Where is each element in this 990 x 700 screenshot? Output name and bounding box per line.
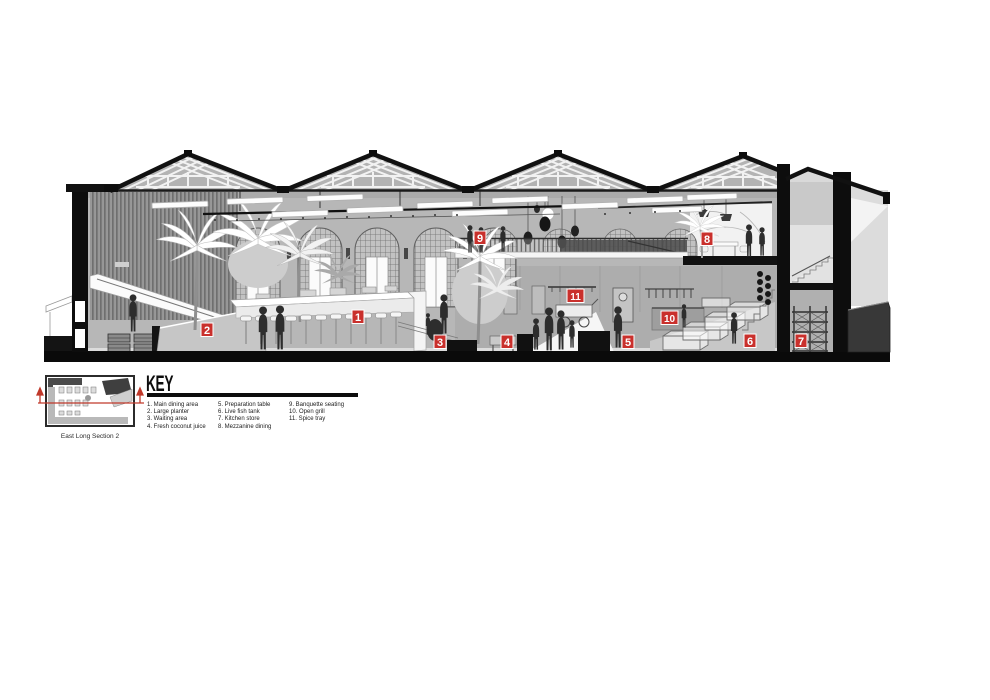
key-item-1: 1. Main dining area (147, 402, 218, 409)
key-column: 1. Main dining area2. Large planter3. Wa… (147, 402, 218, 431)
section-drawing: 1234567891011 (0, 0, 990, 700)
key-item-6: 6. Live fish tank (218, 409, 289, 416)
annex-upper-room (790, 225, 833, 283)
svg-text:6: 6 (747, 336, 753, 348)
svg-text:9: 9 (477, 233, 483, 245)
section-caption: East Long Section 2 (40, 433, 140, 440)
annex-wall-left (777, 164, 790, 352)
roof-structure (86, 150, 786, 193)
key-item-7: 7. Kitchen store (218, 416, 289, 423)
key-column: 5. Preparation table6. Live fish tank7. … (218, 402, 289, 431)
section-marker-11: 11 (567, 289, 584, 303)
key-item-9: 9. Banquette seating (289, 402, 364, 409)
ground-line (44, 351, 890, 362)
svg-text:5: 5 (625, 337, 631, 349)
svg-text:7: 7 (798, 336, 804, 348)
right-annex (777, 164, 890, 352)
key-rule (147, 393, 358, 397)
rear-annex-block (848, 302, 890, 352)
section-marker-10: 10 (661, 311, 678, 325)
svg-text:8: 8 (704, 234, 710, 246)
location-plan-thumbnail (36, 373, 146, 440)
key-item-8: 8. Mezzanine dining (218, 424, 289, 431)
svg-text:4: 4 (504, 337, 511, 349)
key-legend: 1. Main dining area2. Large planter3. Wa… (147, 402, 364, 431)
section-marker-4: 4 (501, 335, 513, 349)
section-marker-1: 1 (352, 310, 364, 324)
svg-text:10: 10 (664, 314, 676, 325)
key-column: 9. Banquette seating10. Open grill11. Sp… (289, 402, 364, 431)
section-marker-8: 8 (701, 232, 713, 246)
section-marker-6: 6 (744, 334, 756, 348)
key-item-11: 11. Spice tray (289, 416, 364, 423)
roof-bay-4 (653, 156, 786, 191)
svg-text:11: 11 (570, 292, 581, 303)
section-marker-2: 2 (201, 323, 213, 337)
key-item-3: 3. Waiting area (147, 416, 218, 423)
section-marker-3: 3 (434, 335, 446, 349)
architectural-sheet: 1234567891011 KEY 1. Main dining area2. … (0, 0, 990, 700)
key-item-2: 2. Large planter (147, 409, 218, 416)
key-item-10: 10. Open grill (289, 409, 364, 416)
section-marker-7: 7 (795, 334, 807, 348)
svg-text:2: 2 (204, 325, 210, 337)
section-marker-9: 9 (474, 231, 486, 245)
plan-thumbnail-drawing (36, 373, 146, 435)
lean-to-roof (46, 296, 72, 312)
svg-text:3: 3 (437, 337, 443, 349)
left-cut-wall (72, 186, 88, 352)
key-item-4: 4. Fresh coconut juice (147, 424, 218, 431)
svg-text:1: 1 (355, 312, 361, 324)
key-item-5: 5. Preparation table (218, 402, 289, 409)
section-marker-5: 5 (622, 335, 634, 349)
mezzanine-slab (683, 256, 777, 265)
